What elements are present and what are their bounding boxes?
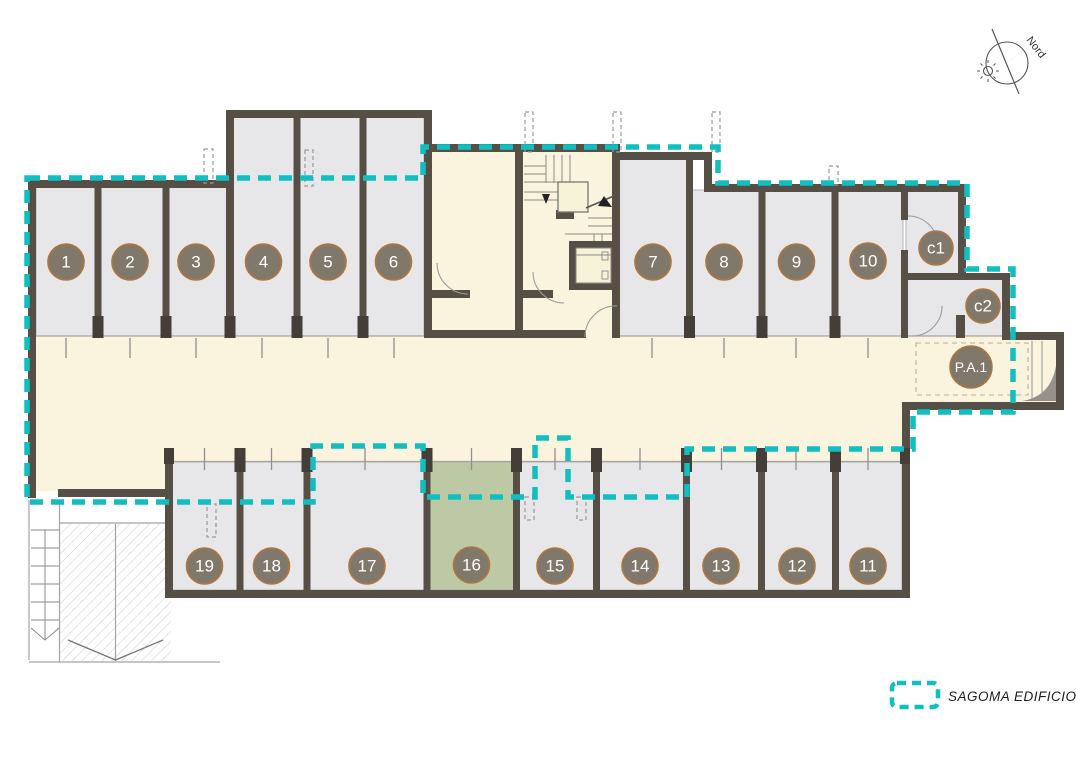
legend-label: SAGOMA EDIFICIO <box>948 689 1076 704</box>
svg-text:6: 6 <box>389 253 398 272</box>
room-badge-9[interactable]: 9 <box>779 244 815 280</box>
svg-text:c1: c1 <box>927 239 945 258</box>
svg-text:9: 9 <box>792 253 801 272</box>
svg-text:c2: c2 <box>974 297 992 316</box>
room-badge-c1[interactable]: c1 <box>919 231 953 265</box>
svg-text:17: 17 <box>358 557 377 576</box>
svg-text:16: 16 <box>462 556 481 575</box>
legend-swatch-sagoma <box>892 683 938 707</box>
room-6[interactable] <box>361 116 424 336</box>
svg-text:8: 8 <box>719 253 728 272</box>
room-badge-5[interactable]: 5 <box>310 244 346 280</box>
stair-landing <box>558 182 588 212</box>
north-needle <box>1006 48 1025 64</box>
room-badge-12[interactable]: 12 <box>779 548 815 584</box>
room-badge-8[interactable]: 8 <box>706 244 742 280</box>
room-badge-16[interactable]: 16 <box>454 547 490 583</box>
room-badge-11[interactable]: 11 <box>850 548 886 584</box>
north-compass: Nord <box>977 29 1048 94</box>
svg-text:2: 2 <box>125 253 134 272</box>
room-badge-pa1[interactable]: P.A.1 <box>950 346 992 388</box>
svg-text:19: 19 <box>195 557 214 576</box>
svg-text:12: 12 <box>788 557 807 576</box>
room-badge-15[interactable]: 15 <box>537 548 573 584</box>
room-badge-10[interactable]: 10 <box>850 243 886 279</box>
room-badge-18[interactable]: 18 <box>254 548 290 584</box>
elevator <box>569 241 618 290</box>
room-badge-1[interactable]: 1 <box>48 244 84 280</box>
room-badge-14[interactable]: 14 <box>622 548 658 584</box>
svg-text:7: 7 <box>648 253 657 272</box>
svg-text:5: 5 <box>323 253 332 272</box>
room-badge-7[interactable]: 7 <box>635 244 671 280</box>
svg-text:13: 13 <box>712 557 731 576</box>
room-badge-6[interactable]: 6 <box>376 244 412 280</box>
room-badge-17[interactable]: 17 <box>349 548 385 584</box>
svg-text:14: 14 <box>631 557 650 576</box>
floor-plan-svg: 1 2 3 4 5 6 7 8 9 10 c1 c2 P.A.1 11 12 1… <box>0 0 1076 780</box>
room-badge-c2[interactable]: c2 <box>966 289 1000 323</box>
room-badge-2[interactable]: 2 <box>112 244 148 280</box>
svg-text:1: 1 <box>61 253 70 272</box>
svg-text:3: 3 <box>191 253 200 272</box>
room-4[interactable] <box>232 116 295 336</box>
room-5[interactable] <box>295 116 361 336</box>
svg-text:10: 10 <box>859 252 878 271</box>
svg-text:11: 11 <box>859 557 877 576</box>
room-badge-4[interactable]: 4 <box>246 244 282 280</box>
room-badge-19[interactable]: 19 <box>187 548 223 584</box>
svg-text:P.A.1: P.A.1 <box>955 359 988 375</box>
exterior-stair <box>31 530 59 640</box>
svg-text:15: 15 <box>546 557 565 576</box>
room-badge-13[interactable]: 13 <box>703 548 739 584</box>
svg-text:18: 18 <box>262 557 281 576</box>
floor-plan-page: 1 2 3 4 5 6 7 8 9 10 c1 c2 P.A.1 11 12 1… <box>0 0 1076 780</box>
legend: SAGOMA EDIFICIO <box>892 683 1076 707</box>
svg-text:4: 4 <box>259 253 268 272</box>
room-badge-3[interactable]: 3 <box>178 244 214 280</box>
